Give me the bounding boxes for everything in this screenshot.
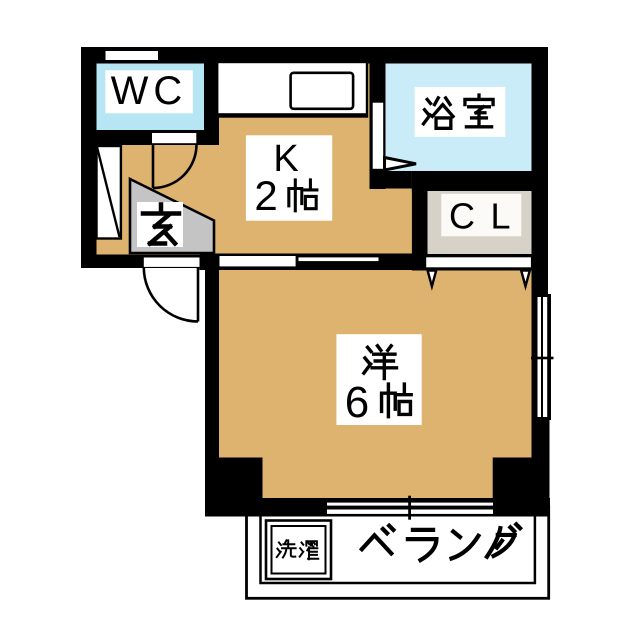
svg-text:6: 6 [345,378,369,427]
svg-text:2: 2 [254,172,277,219]
svg-text:WC: WC [111,69,188,113]
svg-text:CL: CL [449,196,526,237]
